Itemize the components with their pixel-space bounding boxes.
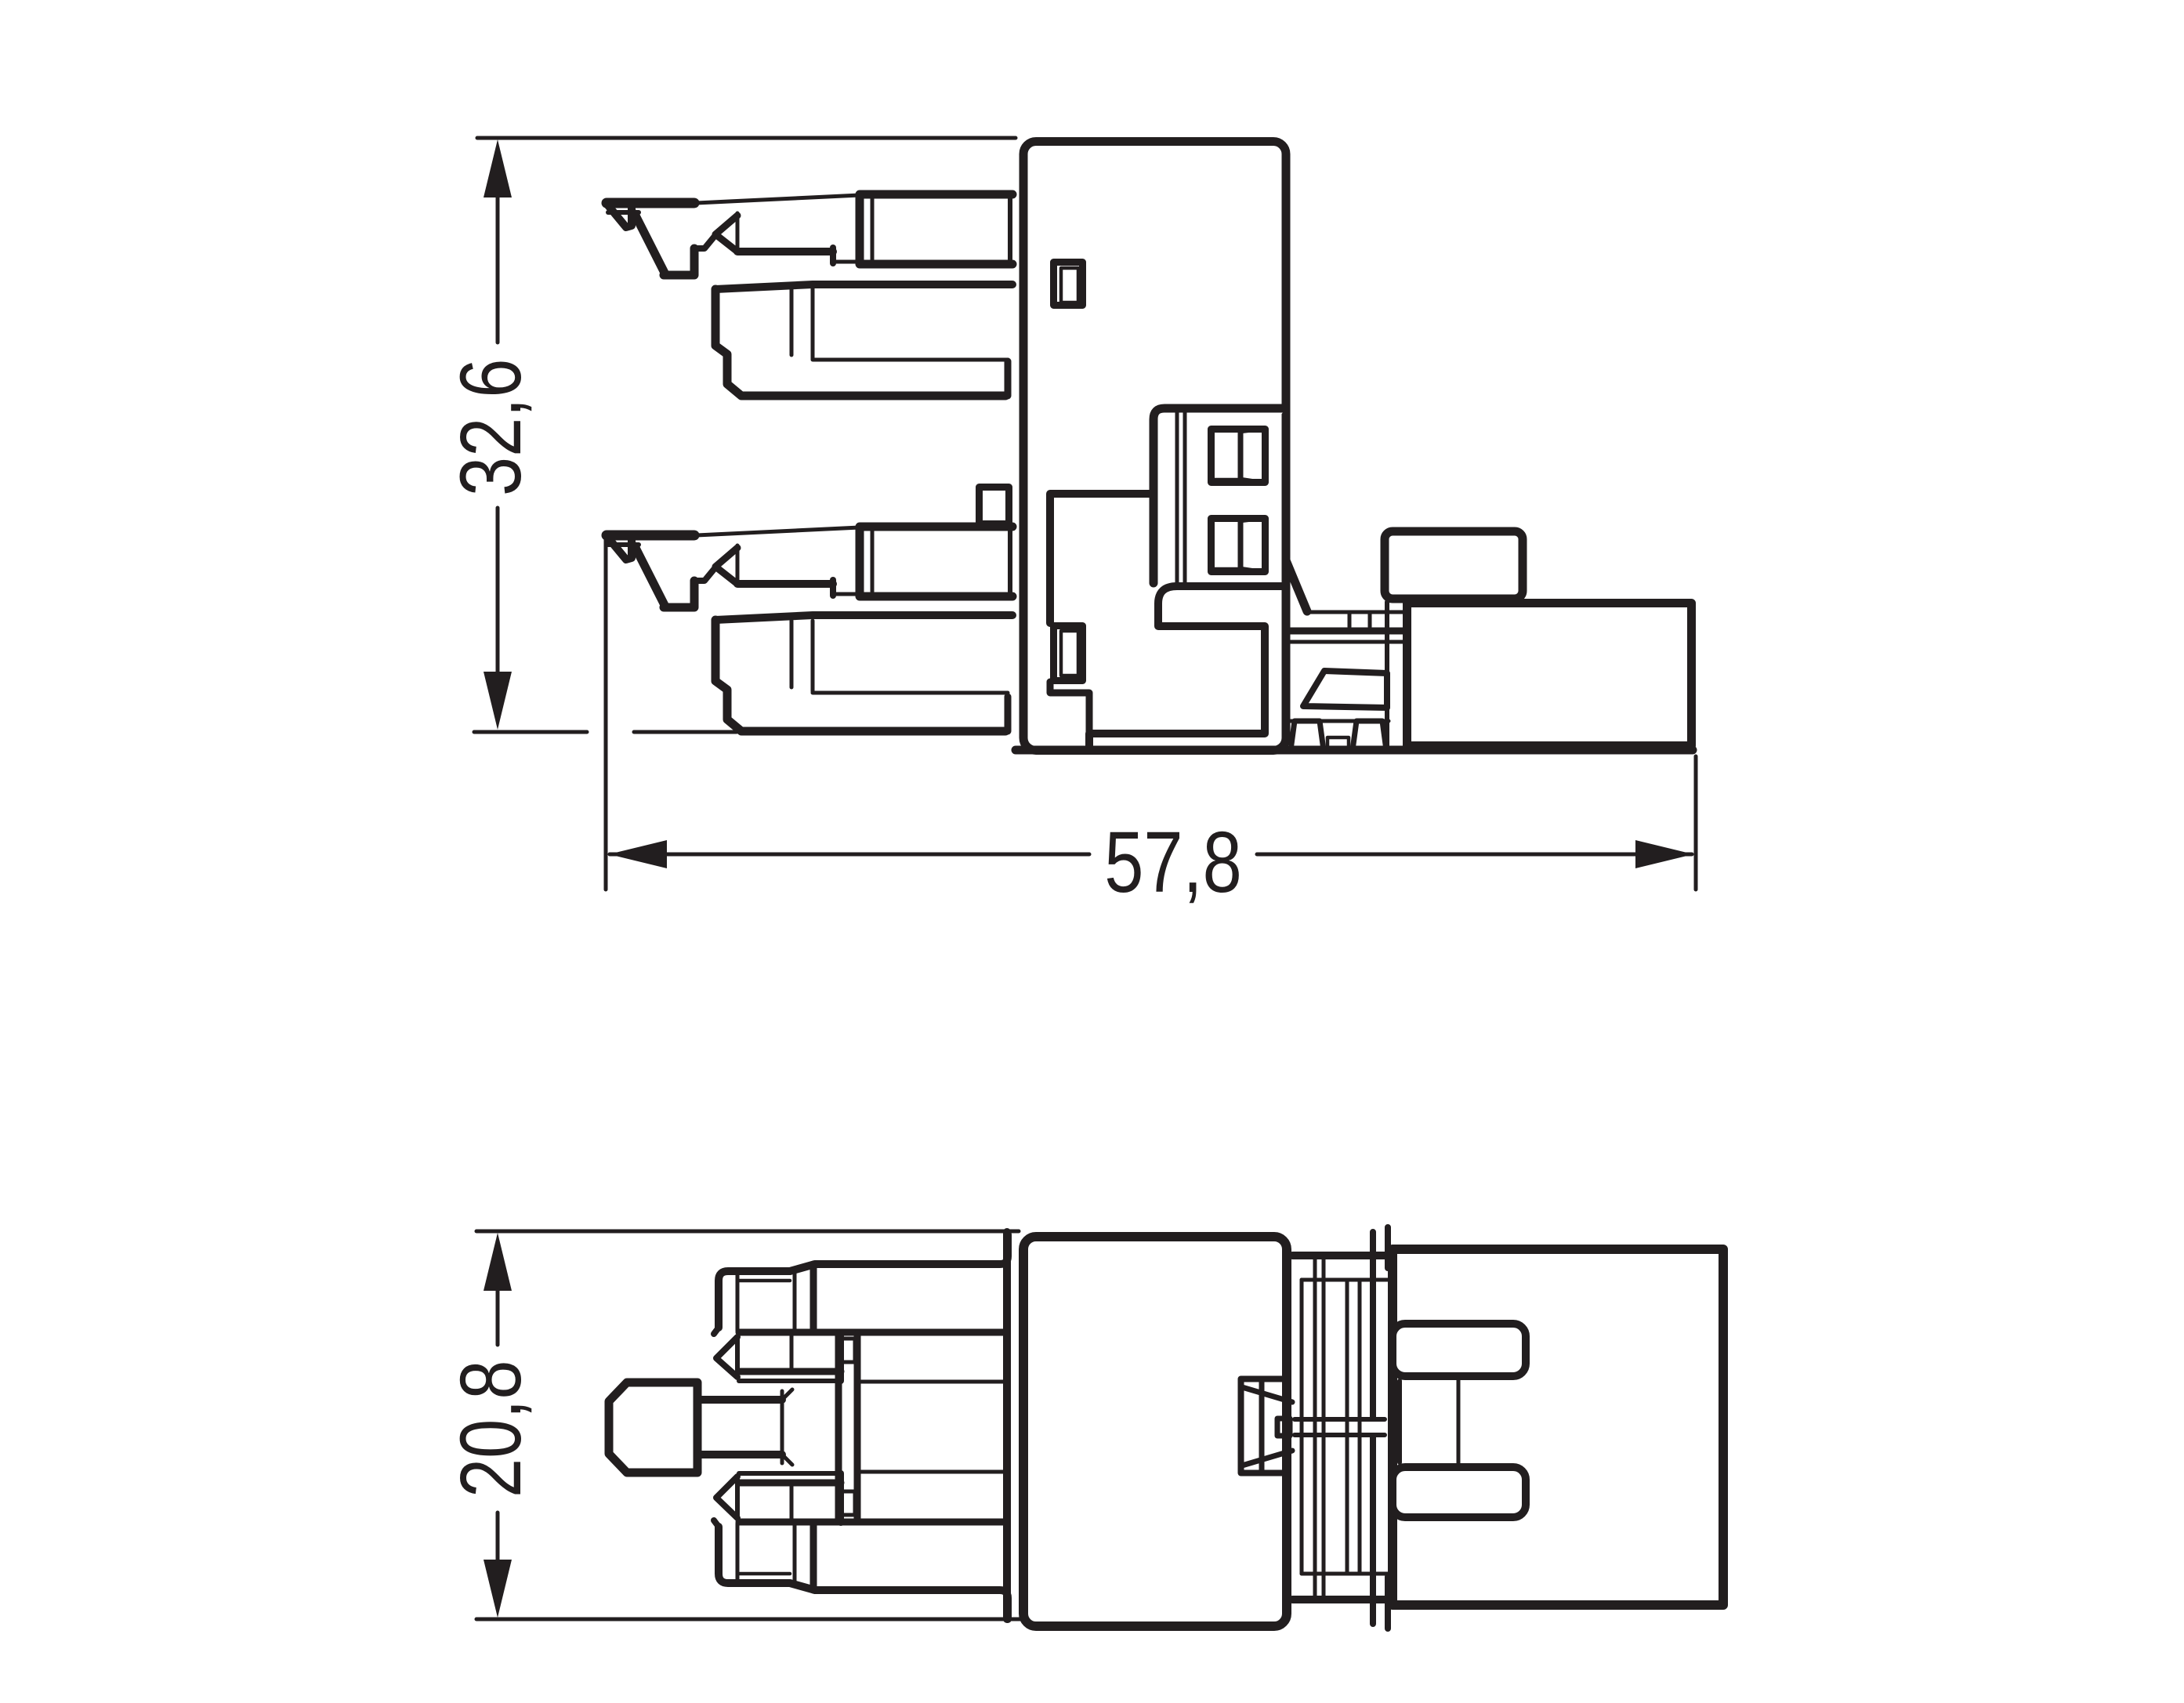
svg-text:20,8: 20,8 (444, 1360, 539, 1498)
svg-text:57,8: 57,8 (1104, 815, 1242, 911)
svg-text:32,6: 32,6 (444, 358, 539, 496)
